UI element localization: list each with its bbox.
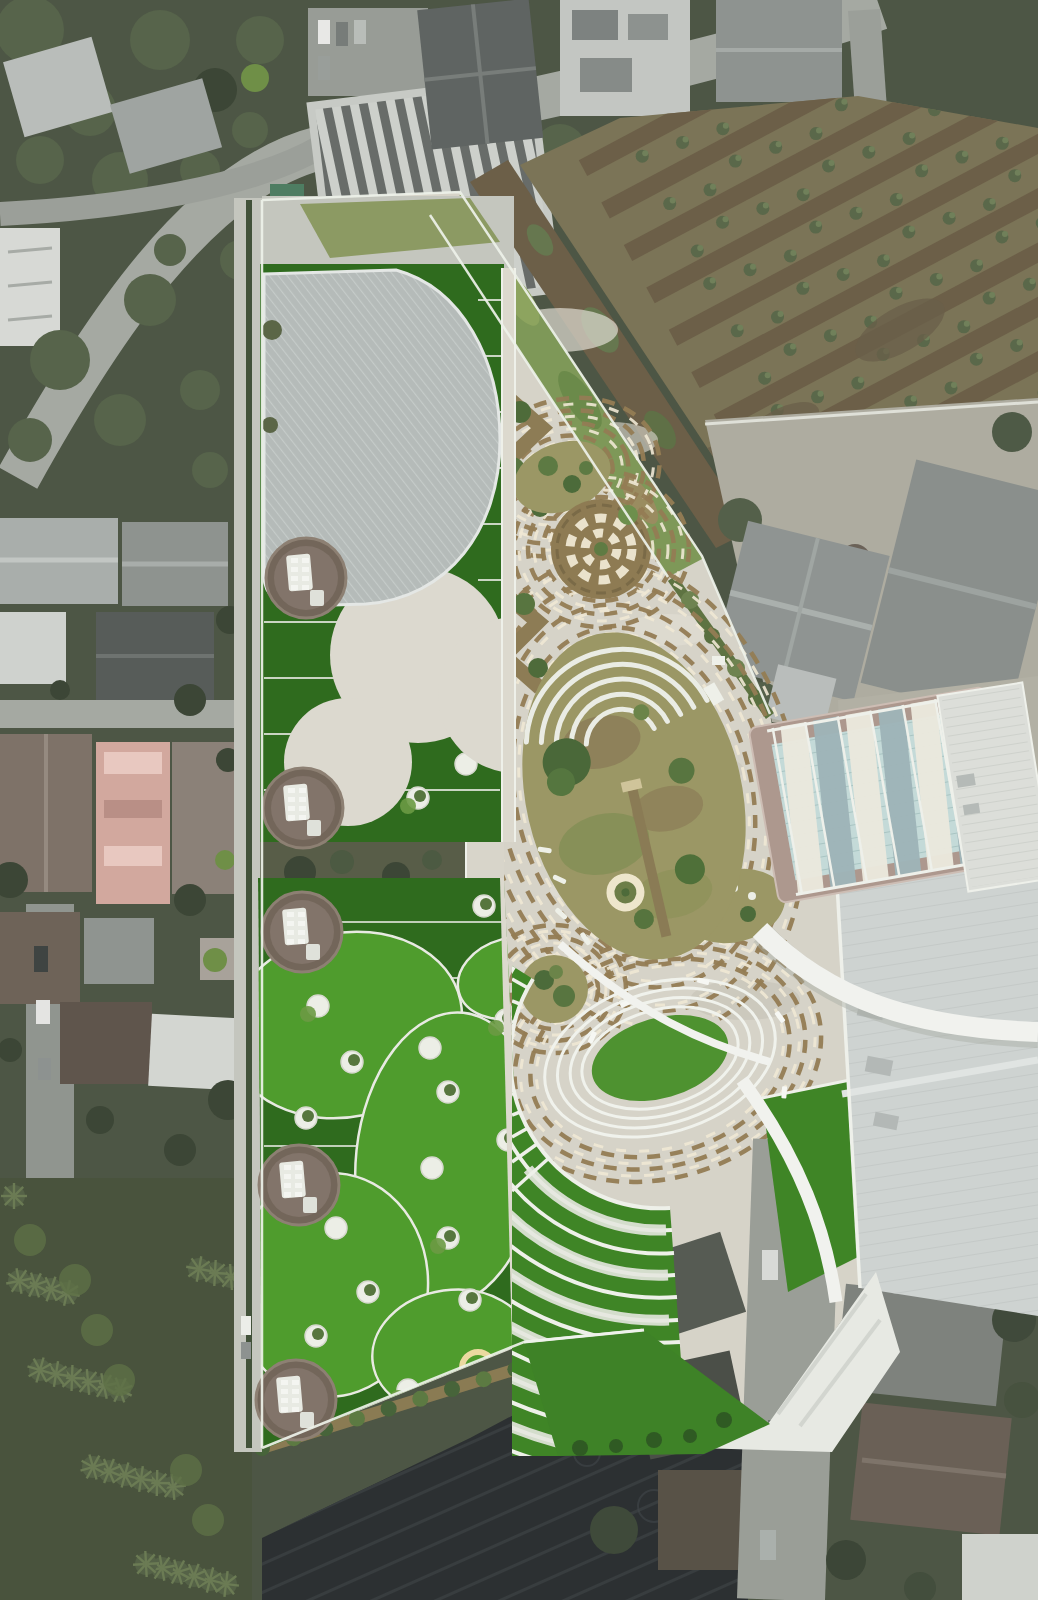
car	[241, 1316, 251, 1335]
pavilion-furniture	[302, 567, 309, 572]
palm-tree	[683, 136, 689, 142]
palm-tree	[976, 353, 982, 359]
boundary-bush	[412, 1391, 428, 1407]
bench	[781, 1086, 787, 1098]
car	[34, 946, 48, 972]
pavilion-furniture	[284, 1165, 291, 1170]
palm-tree	[778, 311, 784, 317]
house-roof	[84, 918, 154, 984]
tree	[164, 1134, 196, 1166]
tree	[8, 418, 52, 462]
palm-tree	[1017, 339, 1023, 345]
palm-tree	[737, 325, 743, 331]
pavilion-structure	[307, 820, 321, 836]
car	[36, 1000, 50, 1024]
gymnasium-roof	[836, 834, 1038, 1316]
planter-plant	[444, 1084, 456, 1096]
plant	[488, 1020, 504, 1036]
pavilion-furniture	[302, 576, 309, 581]
planter-plant	[414, 790, 426, 802]
palm-tree	[765, 372, 771, 378]
palm-tree	[911, 396, 917, 402]
palm-tree	[710, 184, 716, 190]
palm-frond	[145, 1551, 146, 1577]
neighborhood-west	[0, 518, 248, 1182]
aerial-photo-stage	[0, 0, 1038, 1600]
pavilion-furniture	[287, 939, 294, 944]
palm-tree	[723, 123, 729, 129]
palm-tree	[790, 250, 796, 256]
planter-plant	[348, 1054, 360, 1066]
palm-tree	[830, 330, 836, 336]
palm-tree	[1002, 137, 1008, 143]
house-roof	[0, 612, 66, 684]
palm-tree	[841, 99, 847, 105]
palm-tree	[818, 391, 824, 397]
pavilion-furniture	[299, 797, 306, 802]
pavilion-furniture	[295, 1174, 302, 1179]
tree	[180, 370, 220, 410]
pavilion-furniture	[281, 1380, 288, 1385]
palm-tree	[936, 273, 942, 279]
palm-tree	[803, 189, 809, 195]
palm-tree	[735, 155, 741, 161]
pavilion-furniture	[291, 567, 298, 572]
car	[762, 1250, 778, 1280]
banana-clump	[103, 1364, 135, 1396]
planter	[325, 1217, 347, 1239]
palm-tree	[883, 255, 889, 261]
boundary-bush	[381, 1401, 397, 1417]
palm-tree	[816, 221, 822, 227]
planter-plant	[480, 898, 492, 910]
palm-tree	[858, 377, 864, 383]
pavilion-furniture	[292, 1407, 299, 1412]
tree	[154, 234, 186, 266]
palm-tree	[896, 287, 902, 293]
pavilion-furniture	[287, 930, 294, 935]
tree	[50, 680, 70, 700]
palm-tree	[896, 194, 902, 200]
pavilion-furniture	[281, 1407, 288, 1412]
pavilion-structure	[300, 1412, 314, 1428]
pavilion-furniture	[284, 1192, 291, 1197]
house-roof	[962, 1534, 1038, 1600]
palm-tree	[776, 141, 782, 147]
pavilion-furniture	[299, 815, 306, 820]
palm-tree	[763, 202, 769, 208]
car	[760, 1530, 776, 1560]
banana-clump	[81, 1314, 113, 1346]
pavilion-furniture	[295, 1192, 302, 1197]
palm-tree	[710, 277, 716, 283]
tree	[174, 684, 206, 716]
pavilion-furniture	[298, 912, 305, 917]
palm-tree	[803, 282, 809, 288]
palm-tree	[843, 269, 849, 275]
pavilion-furniture	[288, 815, 295, 820]
pavilion-furniture	[281, 1389, 288, 1394]
planter	[421, 1157, 443, 1179]
palm-tree	[951, 382, 957, 388]
palm-tree	[964, 321, 970, 327]
pavilion	[259, 1145, 339, 1225]
tree	[232, 112, 268, 148]
planter	[419, 1037, 441, 1059]
house-roof	[658, 1470, 748, 1570]
pavilion-furniture	[292, 1398, 299, 1403]
palm-tree	[989, 292, 995, 298]
pink-building	[96, 742, 170, 904]
pavilion-furniture	[302, 585, 309, 590]
pavilion-furniture	[291, 558, 298, 563]
tree	[86, 1106, 114, 1134]
palm-tree	[828, 160, 834, 166]
pavilion-furniture	[288, 788, 295, 793]
palm-tree	[1029, 278, 1035, 284]
fan-riser-line	[512, 1021, 514, 1022]
boundary-bush	[444, 1381, 460, 1397]
pavilion-furniture	[291, 576, 298, 581]
tree	[124, 274, 176, 326]
plant	[300, 1006, 316, 1022]
pavilion	[266, 538, 346, 618]
palm-tree	[922, 165, 928, 171]
pavilion-structure	[306, 944, 320, 960]
pavilion	[263, 768, 343, 848]
palm-tree	[989, 198, 995, 204]
pavilion-furniture	[288, 797, 295, 802]
pavilion-furniture	[302, 558, 309, 563]
boundary-bush	[476, 1371, 492, 1387]
palm-tree	[909, 132, 915, 138]
palm-tree	[790, 343, 796, 349]
pavilion-furniture	[288, 806, 295, 811]
banana-clump	[59, 1264, 91, 1296]
planter-plant	[312, 1328, 324, 1340]
main-walkway	[502, 268, 515, 842]
palm-tree	[642, 150, 648, 156]
planter-plant	[466, 1292, 478, 1304]
palm-tree	[977, 260, 983, 266]
palm-tree	[750, 264, 756, 270]
palm-tree	[856, 207, 862, 213]
pavilion-structure	[303, 1197, 317, 1213]
pavilion-furniture	[299, 806, 306, 811]
car	[38, 1058, 51, 1080]
banana-clump	[192, 1504, 224, 1536]
palm-tree	[816, 128, 822, 134]
palm-grove	[0, 1178, 252, 1600]
tree	[130, 10, 190, 70]
palm-tree	[869, 146, 875, 152]
pavilion-furniture	[292, 1389, 299, 1394]
palm-tree	[949, 212, 955, 218]
pavilion-furniture	[298, 939, 305, 944]
tree	[192, 452, 228, 488]
tree	[30, 330, 90, 390]
plant	[430, 1238, 446, 1254]
pavilion-structure	[310, 590, 324, 606]
car	[241, 1342, 251, 1359]
fan-riser-line	[512, 1094, 514, 1095]
palm-tree	[962, 151, 968, 157]
pavilion-furniture	[295, 1165, 302, 1170]
pavilion-furniture	[298, 930, 305, 935]
palm-tree	[909, 226, 915, 232]
pavilion	[262, 892, 342, 972]
pavilion-furniture	[291, 585, 298, 590]
tree	[203, 948, 227, 972]
pavilion-furniture	[284, 1174, 291, 1179]
palm-tree	[697, 245, 703, 251]
tree	[16, 136, 64, 184]
tree	[236, 16, 284, 64]
planter-plant	[302, 1110, 314, 1122]
planter-plant	[364, 1284, 376, 1296]
planter-plant	[444, 1230, 456, 1242]
pavilion-furniture	[299, 788, 306, 793]
house-roof	[60, 1002, 152, 1084]
pavilion-furniture	[295, 1183, 302, 1188]
pavilion-furniture	[292, 1380, 299, 1385]
banana-clump	[14, 1224, 46, 1256]
tree	[241, 64, 269, 92]
banana-clump	[170, 1454, 202, 1486]
plant	[400, 798, 416, 814]
pavilion-furniture	[287, 912, 294, 917]
small-structure	[712, 656, 725, 665]
pavilion-furniture	[284, 1183, 291, 1188]
pavilion-furniture	[298, 921, 305, 926]
garden-circle	[520, 955, 588, 1023]
pavilion	[256, 1360, 336, 1440]
tree	[174, 884, 206, 916]
pavilion-furniture	[281, 1398, 288, 1403]
palm-tree	[670, 198, 676, 204]
aerial-photo	[0, 0, 1038, 1600]
tree	[94, 394, 146, 446]
thai-house-roof	[417, 0, 543, 149]
pavilion-furniture	[287, 921, 294, 926]
tree	[215, 850, 235, 870]
house-roof	[148, 1014, 238, 1090]
palm-tree	[1002, 231, 1008, 237]
palm-tree	[1015, 170, 1021, 176]
palm-tree	[723, 216, 729, 222]
